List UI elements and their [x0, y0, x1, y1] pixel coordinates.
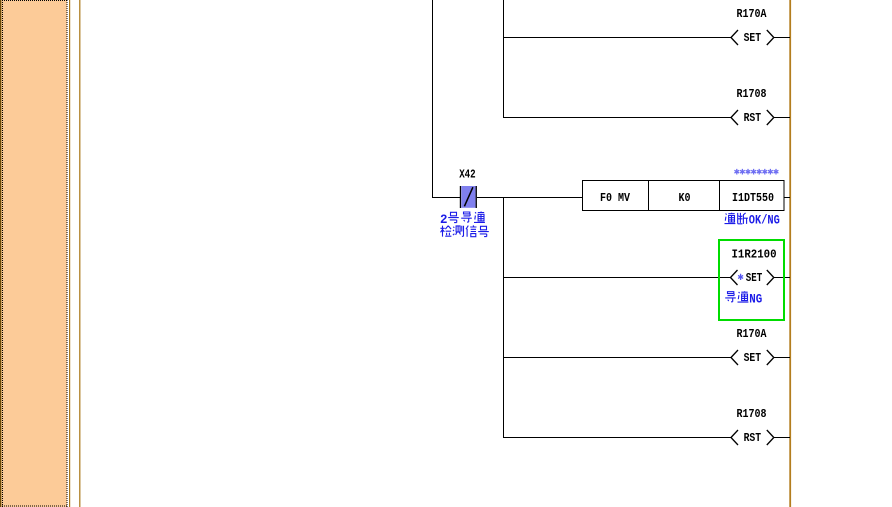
svg-text:R1708: R1708	[737, 88, 767, 101]
svg-text:RST: RST	[744, 111, 762, 125]
svg-text:I1R2100: I1R2100	[732, 249, 777, 262]
svg-text:2: 2	[440, 213, 448, 227]
svg-text:R170A: R170A	[737, 8, 767, 21]
svg-text:SET: SET	[744, 31, 762, 45]
svg-text:I1DT550: I1DT550	[732, 192, 774, 205]
svg-text:X42: X42	[459, 168, 476, 181]
svg-text:SET: SET	[744, 351, 762, 365]
svg-text:R170A: R170A	[737, 328, 767, 341]
svg-text:SET: SET	[746, 271, 763, 285]
svg-text:OK/NG: OK/NG	[749, 213, 780, 227]
svg-text:R1708: R1708	[737, 408, 767, 421]
svg-text:RST: RST	[744, 431, 762, 445]
svg-text:K0: K0	[679, 192, 691, 205]
svg-text:F0 MV: F0 MV	[600, 192, 630, 205]
svg-text:NG: NG	[749, 293, 762, 307]
